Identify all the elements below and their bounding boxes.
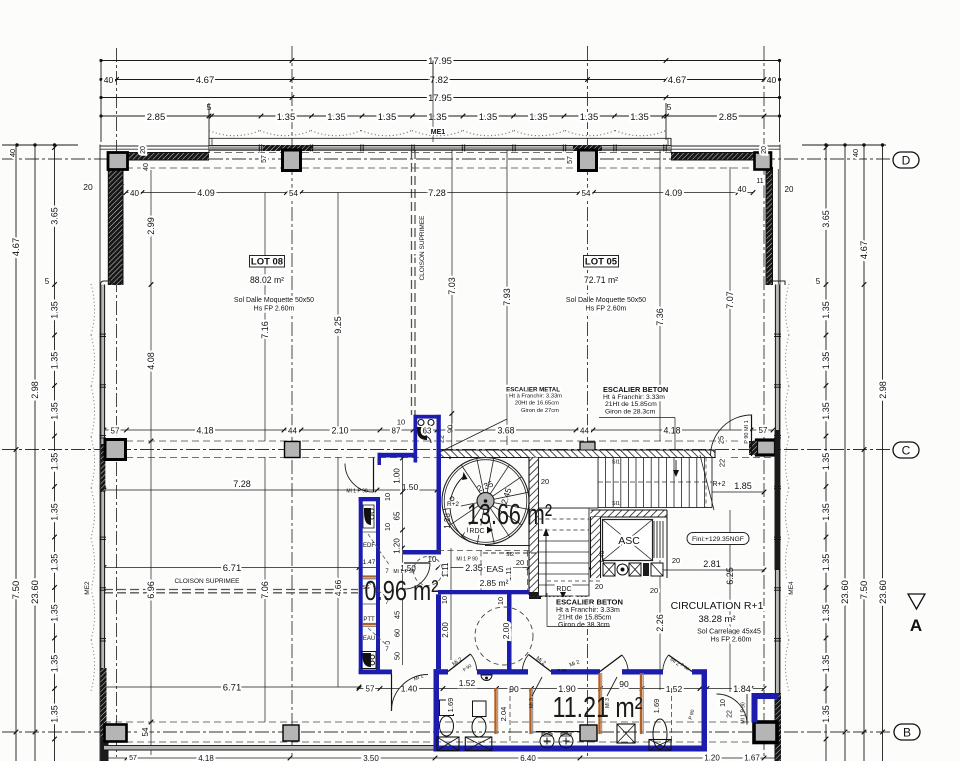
- svg-text:40: 40: [130, 189, 139, 198]
- svg-text:1.47: 1.47: [363, 559, 376, 566]
- svg-text:40: 40: [104, 75, 114, 85]
- svg-text:RDC: RDC: [556, 586, 571, 593]
- svg-text:B: B: [903, 726, 911, 740]
- svg-text:1.35: 1.35: [479, 112, 498, 123]
- svg-text:4.18: 4.18: [663, 426, 680, 436]
- svg-text:1.52: 1.52: [666, 684, 683, 694]
- svg-text:10: 10: [720, 699, 727, 707]
- svg-text:7.50: 7.50: [11, 581, 22, 600]
- svg-text:3.65: 3.65: [821, 210, 831, 228]
- svg-text:7.06: 7.06: [260, 581, 270, 599]
- svg-text:87: 87: [392, 427, 401, 436]
- svg-text:Sol Dalle Moquette 50x50: Sol Dalle Moquette 50x50: [234, 297, 314, 304]
- svg-text:44: 44: [580, 427, 589, 436]
- svg-text:1.52: 1.52: [459, 678, 476, 688]
- svg-text:1.35: 1.35: [821, 402, 831, 420]
- svg-text:1.35: 1.35: [50, 705, 60, 723]
- svg-text:MI 1 P 90: MI 1 P 90: [741, 702, 747, 724]
- svg-text:22: 22: [727, 710, 734, 718]
- svg-text:3.68: 3.68: [497, 426, 514, 436]
- svg-text:Hs FP 2.60m: Hs FP 2.60m: [254, 306, 295, 313]
- svg-text:2.10: 2.10: [331, 426, 348, 436]
- svg-text:3.65: 3.65: [50, 207, 60, 225]
- svg-text:57: 57: [129, 755, 137, 761]
- svg-text:1.35: 1.35: [428, 112, 447, 123]
- svg-text:LOT 05: LOT 05: [585, 257, 618, 268]
- svg-text:1.35: 1.35: [50, 554, 60, 572]
- svg-text:40: 40: [851, 149, 860, 157]
- svg-text:2.00: 2.00: [441, 622, 450, 638]
- svg-text:4.09: 4.09: [665, 188, 683, 198]
- svg-text:90: 90: [446, 425, 455, 433]
- svg-text:1.35: 1.35: [821, 301, 831, 319]
- svg-text:Fini:+129.35NGF: Fini:+129.35NGF: [692, 536, 744, 543]
- svg-text:60: 60: [393, 629, 402, 637]
- svg-text:40: 40: [738, 185, 747, 194]
- svg-text:54: 54: [582, 189, 591, 198]
- svg-text:10: 10: [440, 596, 449, 604]
- svg-text:RDC: RDC: [469, 528, 484, 535]
- svg-text:1.35: 1.35: [821, 453, 831, 471]
- svg-text:88.02 m²: 88.02 m²: [250, 275, 284, 285]
- svg-text:20: 20: [761, 146, 768, 154]
- svg-text:25: 25: [717, 436, 726, 444]
- svg-text:4.67: 4.67: [668, 75, 687, 86]
- svg-text:1.35: 1.35: [630, 112, 649, 123]
- svg-text:LOT 08: LOT 08: [251, 257, 283, 268]
- svg-text:Sol Dalle Moquette 50x50: Sol Dalle Moquette 50x50: [566, 297, 646, 304]
- svg-text:2.35: 2.35: [465, 563, 483, 573]
- svg-text:1.84: 1.84: [733, 684, 751, 694]
- svg-text:57: 57: [567, 156, 574, 164]
- svg-text:10: 10: [496, 597, 505, 605]
- svg-text:5: 5: [45, 277, 50, 286]
- svg-text:23.60: 23.60: [840, 580, 851, 604]
- svg-text:44: 44: [288, 427, 297, 436]
- svg-text:6.96: 6.96: [146, 581, 156, 599]
- svg-text:1.35: 1.35: [277, 112, 296, 123]
- svg-text:1.00: 1.00: [393, 468, 402, 484]
- svg-text:7.03: 7.03: [447, 277, 457, 295]
- svg-text:D: D: [902, 154, 911, 168]
- svg-text:7.16: 7.16: [260, 321, 270, 339]
- svg-text:1.35: 1.35: [529, 112, 548, 123]
- svg-text:90: 90: [619, 679, 629, 689]
- svg-text:1.35: 1.35: [327, 112, 346, 123]
- svg-text:23.60: 23.60: [30, 580, 41, 604]
- svg-text:1.35: 1.35: [821, 554, 831, 572]
- svg-text:7.28: 7.28: [233, 479, 251, 489]
- svg-text:20Ht de 16.65cm: 20Ht de 16.65cm: [515, 401, 559, 407]
- svg-text:22: 22: [718, 459, 727, 467]
- svg-text:90: 90: [509, 684, 519, 694]
- svg-text:2.85 m²: 2.85 m²: [480, 578, 509, 588]
- svg-text:MI 3: MI 3: [529, 698, 535, 708]
- svg-text:5: 5: [816, 277, 821, 286]
- svg-text:7.36: 7.36: [655, 308, 665, 326]
- svg-text:7.28: 7.28: [428, 188, 446, 198]
- svg-text:C: C: [902, 444, 911, 458]
- svg-text:10: 10: [383, 493, 392, 501]
- svg-text:10: 10: [383, 523, 392, 531]
- svg-text:P 90: P 90: [557, 668, 567, 673]
- svg-text:20: 20: [785, 185, 794, 194]
- svg-text:PTT: PTT: [363, 617, 375, 623]
- svg-text:7.50: 7.50: [859, 581, 870, 600]
- svg-text:1.35: 1.35: [378, 112, 397, 123]
- svg-text:54: 54: [289, 189, 298, 198]
- svg-text:ME1: ME1: [431, 129, 446, 136]
- svg-text:2.00: 2.00: [501, 622, 511, 639]
- svg-text:1.35: 1.35: [50, 352, 60, 370]
- svg-text:20: 20: [516, 558, 524, 567]
- svg-text:MI 1 P 90: MI 1 P 90: [456, 557, 478, 563]
- svg-text:72.71 m²: 72.71 m²: [584, 275, 618, 285]
- svg-text:1.85: 1.85: [734, 481, 752, 491]
- svg-text:10: 10: [397, 418, 405, 427]
- svg-text:R+2: R+2: [712, 481, 725, 488]
- svg-text:57: 57: [759, 426, 768, 435]
- svg-text:4.09: 4.09: [197, 188, 215, 198]
- svg-text:57: 57: [111, 427, 120, 436]
- svg-text:1.11: 1.11: [441, 562, 450, 578]
- svg-text:6.40: 6.40: [520, 754, 536, 761]
- svg-text:4.08: 4.08: [146, 352, 156, 370]
- svg-text:50: 50: [393, 652, 402, 660]
- svg-text:ME2: ME2: [84, 581, 91, 595]
- svg-text:1.35: 1.35: [50, 604, 60, 622]
- svg-text:Giron de 28.3cm: Giron de 28.3cm: [605, 409, 656, 416]
- svg-text:2.85: 2.85: [147, 112, 166, 123]
- svg-text:1.35: 1.35: [50, 402, 60, 420]
- svg-text:ESCALIER METAL: ESCALIER METAL: [506, 387, 560, 394]
- svg-text:0.96 m²: 0.96 m²: [365, 575, 439, 606]
- svg-text:45: 45: [393, 611, 402, 619]
- svg-text:21Ht de 15.85cm: 21Ht de 15.85cm: [558, 615, 611, 622]
- svg-text:4.67: 4.67: [196, 75, 215, 86]
- svg-text:1.20: 1.20: [393, 538, 402, 554]
- svg-text:CLOISON SUPRIMEE: CLOISON SUPRIMEE: [419, 215, 426, 281]
- svg-text:1.40: 1.40: [599, 550, 606, 563]
- svg-text:1.20: 1.20: [704, 754, 720, 761]
- svg-text:38.28 m²: 38.28 m²: [699, 614, 736, 625]
- svg-text:CLOISON SUPRIMEE: CLOISON SUPRIMEE: [174, 578, 240, 585]
- svg-text:1.35: 1.35: [50, 453, 60, 471]
- svg-text:4.18: 4.18: [196, 426, 213, 436]
- svg-text:CIRCULATION R+1: CIRCULATION R+1: [671, 600, 764, 612]
- svg-text:Ht a Franchir: 3.33m: Ht a Franchir: 3.33m: [556, 607, 620, 614]
- svg-text:1.69: 1.69: [652, 699, 661, 714]
- svg-text:9.25: 9.25: [333, 316, 343, 334]
- svg-text:R+2: R+2: [447, 501, 459, 508]
- svg-text:SI2: SI2: [506, 552, 514, 558]
- svg-text:1.35: 1.35: [50, 655, 60, 673]
- svg-text:2.98: 2.98: [30, 381, 40, 399]
- svg-text:Ht à Franchir: 3.33m: Ht à Franchir: 3.33m: [509, 394, 562, 400]
- svg-text:ME4: ME4: [788, 581, 795, 595]
- svg-text:7.07: 7.07: [725, 291, 735, 309]
- svg-text:40: 40: [143, 163, 150, 171]
- svg-text:Sol Carrelage 45x45: Sol Carrelage 45x45: [697, 629, 761, 636]
- svg-text:Ht à Franchir: 3.33m: Ht à Franchir: 3.33m: [603, 394, 665, 401]
- svg-text:65: 65: [393, 511, 402, 520]
- svg-text:40: 40: [767, 75, 777, 85]
- svg-text:3.50: 3.50: [363, 754, 379, 761]
- svg-text:20: 20: [83, 182, 93, 192]
- svg-text:ESCALIER BETON: ESCALIER BETON: [603, 385, 668, 394]
- svg-text:1.35: 1.35: [821, 503, 831, 521]
- svg-text:1.35: 1.35: [50, 503, 60, 521]
- svg-text:EDF: EDF: [363, 543, 375, 549]
- svg-text:6.71: 6.71: [223, 563, 242, 574]
- svg-text:17.95: 17.95: [428, 56, 452, 67]
- svg-text:4.67: 4.67: [11, 238, 22, 257]
- svg-text:Giron de 38.3cm: Giron de 38.3cm: [558, 622, 610, 629]
- svg-text:20: 20: [140, 146, 147, 154]
- svg-text:20: 20: [595, 582, 603, 591]
- svg-text:1.35: 1.35: [821, 655, 831, 673]
- svg-text:A: A: [910, 616, 922, 635]
- svg-text:2.81: 2.81: [703, 559, 721, 569]
- svg-text:Hs FP 2.60m: Hs FP 2.60m: [711, 637, 752, 644]
- svg-text:1.67: 1.67: [744, 754, 760, 761]
- svg-text:SI1: SI1: [612, 501, 620, 507]
- svg-text:Giron de 27cm: Giron de 27cm: [521, 408, 559, 414]
- svg-text:2.04: 2.04: [499, 707, 508, 722]
- svg-text:1.35: 1.35: [580, 112, 599, 123]
- svg-text:13.66 m²: 13.66 m²: [467, 499, 552, 531]
- svg-text:1.40: 1.40: [401, 684, 418, 694]
- svg-text:17.95: 17.95: [428, 93, 452, 104]
- svg-text:20: 20: [541, 477, 549, 486]
- svg-text:5: 5: [667, 102, 672, 112]
- svg-text:7.93: 7.93: [502, 288, 512, 306]
- svg-text:6.71: 6.71: [223, 683, 242, 694]
- svg-text:2.98: 2.98: [878, 381, 888, 399]
- svg-text:2.99: 2.99: [146, 217, 156, 235]
- svg-text:7.82: 7.82: [430, 75, 449, 86]
- svg-text:1.69: 1.69: [446, 698, 455, 713]
- svg-text:1.35: 1.35: [50, 301, 60, 319]
- svg-text:20: 20: [650, 586, 658, 595]
- svg-text:SI1: SI1: [612, 460, 620, 466]
- svg-text:57: 57: [261, 155, 268, 163]
- svg-text:P 90 MI 1: P 90 MI 1: [744, 420, 750, 443]
- svg-text:EAS: EAS: [486, 564, 503, 574]
- svg-text:11.21 m²: 11.21 m²: [553, 692, 643, 724]
- svg-text:MI 1 P 90: MI 1 P 90: [346, 489, 368, 495]
- svg-text:Hs FP 2.60m: Hs FP 2.60m: [586, 306, 627, 313]
- svg-text:1.35: 1.35: [821, 705, 831, 723]
- svg-text:63: 63: [423, 427, 432, 436]
- svg-text:4.67: 4.67: [859, 241, 870, 260]
- svg-text:1.35: 1.35: [821, 604, 831, 622]
- svg-text:57: 57: [366, 685, 375, 694]
- svg-text:21Ht de 15.85cm: 21Ht de 15.85cm: [605, 401, 657, 408]
- svg-text:11: 11: [756, 178, 763, 185]
- svg-text:ASC: ASC: [618, 535, 640, 547]
- svg-text:EAU: EAU: [363, 636, 375, 642]
- svg-text:ESCALIER BETON: ESCALIER BETON: [556, 598, 623, 607]
- svg-text:2.85: 2.85: [719, 112, 738, 123]
- svg-text:54: 54: [141, 727, 150, 736]
- svg-text:20: 20: [672, 556, 680, 565]
- svg-text:4.18: 4.18: [198, 754, 214, 761]
- svg-text:4.66: 4.66: [333, 579, 343, 596]
- svg-text:1.35: 1.35: [821, 352, 831, 370]
- svg-text:2.26: 2.26: [655, 614, 665, 632]
- svg-text:23.60: 23.60: [878, 580, 889, 604]
